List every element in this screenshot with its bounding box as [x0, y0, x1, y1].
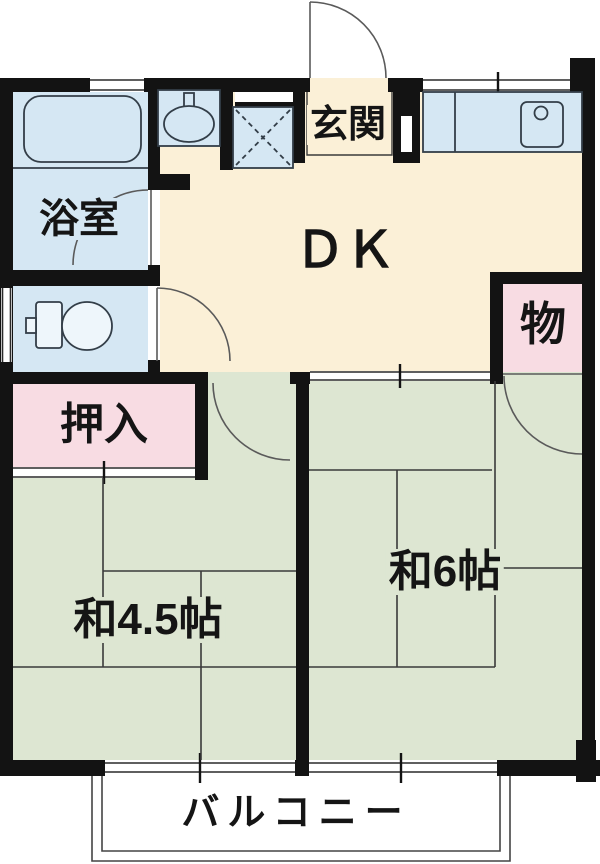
- washbasin-icon: [158, 90, 220, 146]
- wall-washpan-right: [293, 78, 305, 163]
- bathroom-door-opening: [148, 190, 160, 265]
- wall-basin-right: [220, 90, 233, 170]
- wall-left: [0, 78, 13, 776]
- room6-window: [309, 760, 497, 775]
- kitchen-window: [423, 78, 570, 92]
- room-label-balcony: バルコニー: [178, 793, 413, 833]
- wall-middle-left: [0, 372, 208, 384]
- wall-room-divider: [296, 384, 309, 760]
- toilet-side-window: [1, 288, 12, 362]
- toilet-icon: [26, 302, 112, 350]
- wall-right: [582, 78, 595, 776]
- wall-washroom-stub: [148, 174, 190, 190]
- wall-toilet-right-lower: [148, 360, 160, 372]
- wall-top-1: [0, 78, 90, 92]
- floor-plan: 浴室 玄関 ＤＫ 物 押入 和4.5帖 和6帖 バルコニー: [0, 0, 600, 864]
- room-label-tatami45: 和4.5帖: [70, 597, 225, 643]
- wall-storage-top: [490, 272, 595, 284]
- washing-machine-pan: [233, 107, 293, 168]
- room-label-storage: 物: [517, 300, 569, 348]
- room-label-tatami6: 和6帖: [386, 549, 504, 595]
- room-label-dk: ＤＫ: [292, 224, 398, 276]
- entrance-door: [310, 2, 386, 78]
- wall-closet-right: [195, 372, 208, 480]
- toilet-door-opening: [148, 286, 160, 360]
- entrance-wall-slot: [401, 116, 412, 152]
- bathroom-floor: [13, 92, 148, 270]
- high-window-slot: [235, 92, 293, 102]
- kitchen-counter: [423, 92, 582, 152]
- room-label-closet: 押入: [57, 402, 151, 448]
- wall-bottom-right-post: [576, 740, 596, 782]
- bathroom-top-window: [90, 78, 144, 92]
- room45-door-opening: [208, 372, 290, 384]
- wall-bottom-2: [295, 760, 309, 776]
- wall-middle-chunk: [290, 372, 310, 384]
- room-label-entrance: 玄関: [307, 105, 389, 145]
- wall-storage-left: [490, 284, 503, 384]
- room-label-bathroom: 浴室: [36, 198, 122, 240]
- wall-bathroom-bottom: [13, 270, 160, 286]
- wall-bottom-1: [0, 760, 105, 776]
